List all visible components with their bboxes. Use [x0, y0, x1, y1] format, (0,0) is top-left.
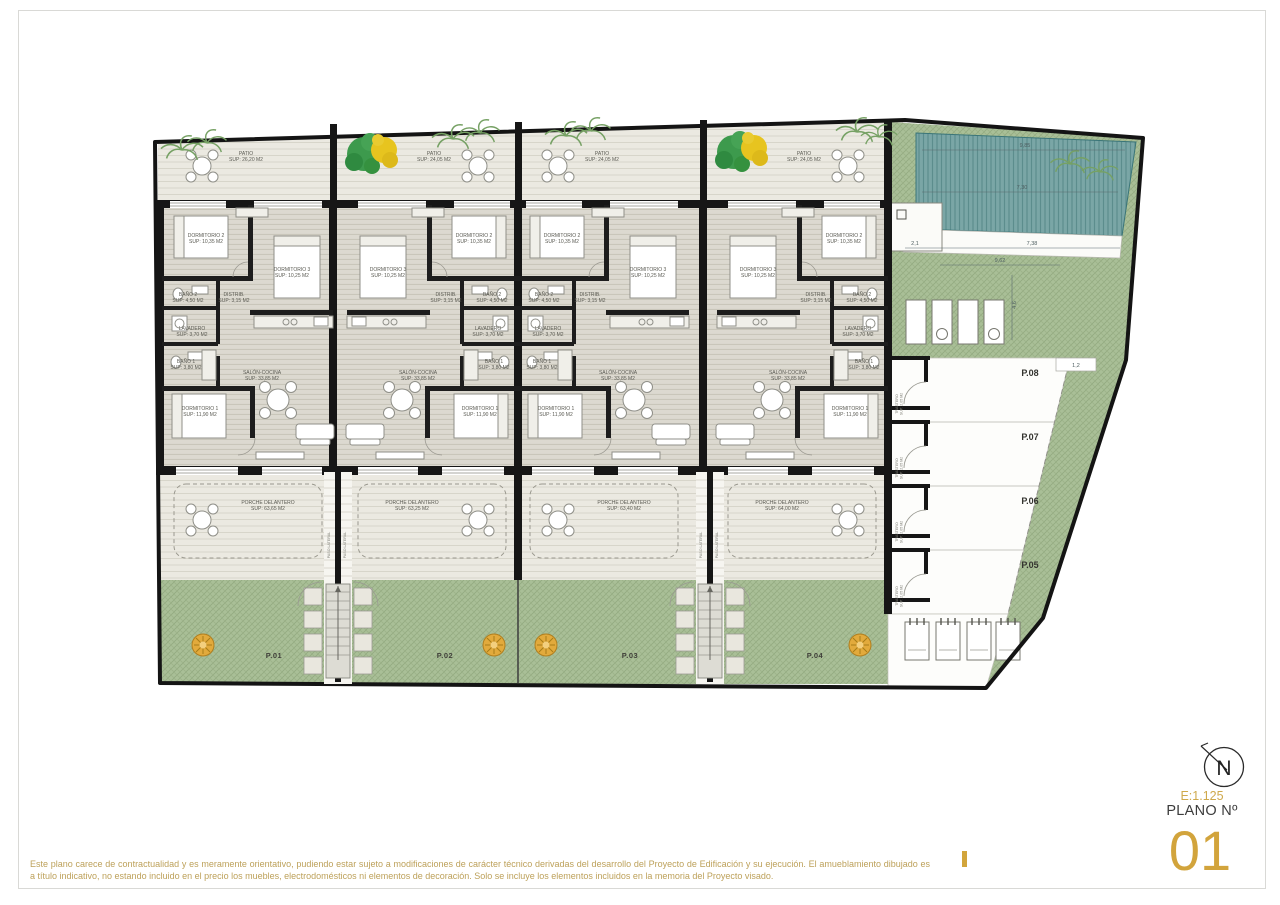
dim-deck-left: 2,1 — [911, 241, 919, 247]
porch-strip — [158, 470, 888, 581]
room-label-dorm3-unit3: DORMITORIO 3SUP: 10,25 M2 — [630, 267, 667, 279]
room-label-dorm3-unit1: DORMITORIO 3SUP: 10,25 M2 — [274, 267, 311, 279]
parking-space-label-P.07: P.07 — [1021, 432, 1038, 442]
room-label-lavadero-unit3: LAVADEROSUP: 3,70 M2 — [532, 326, 563, 338]
room-label-dorm3-unit2: DORMITORIO 3SUP: 10,25 M2 — [370, 267, 407, 279]
dim-deck-right: 7,38 — [1027, 241, 1038, 247]
passage-label-4: PASO LATERAL — [715, 532, 719, 558]
front-gardens — [158, 580, 888, 684]
dim-parking-entry: 1,2 — [1072, 363, 1080, 369]
room-label-lavadero-unit4: LAVADEROSUP: 3,70 M2 — [842, 326, 873, 338]
dim-green-height: 4,6 — [1012, 301, 1018, 309]
north-compass: N — [1196, 735, 1252, 793]
parking-space-label-P.05: P.05 — [1021, 560, 1038, 570]
room-label-dorm1-unit2: DORMITORIO 1SUP: 11,90 M2 — [462, 406, 499, 418]
trastero-label-4: TRASTEROSUP: 2,05 M2 — [895, 585, 904, 607]
plano-number: 01 — [1144, 820, 1256, 882]
room-label-dorm2-unit2: DORMITORIO 2SUP: 10,35 M2 — [456, 233, 493, 245]
room-label-dorm2-unit3: DORMITORIO 2SUP: 10,35 M2 — [544, 233, 581, 245]
site-plan-drawing: PATIOSUP: 26,20 M2DORMITORIO 2SUP: 10,35… — [0, 0, 1280, 740]
room-label-salon-unit3: SALÓN-COCINASUP: 33,85 M2 — [599, 369, 638, 382]
bins-area — [888, 614, 1020, 688]
dim-pool-top: 9,85 — [1020, 143, 1031, 149]
room-label-salon-unit2: SALÓN-COCINASUP: 33,85 M2 — [399, 369, 438, 382]
plano-label: PLANO Nº — [1150, 803, 1254, 819]
room-label-dorm1-unit3: DORMITORIO 1SUP: 11,90 M2 — [538, 406, 575, 418]
plan-scale: E:1.125 — [1150, 789, 1254, 803]
plot-label-P.02: P.02 — [437, 651, 453, 660]
room-label-salon-unit1: SALÓN-COCINASUP: 33,85 M2 — [243, 369, 282, 382]
passage-label-3: PASO LATERAL — [699, 532, 703, 558]
passage-label-1: PASO LATERAL — [327, 532, 331, 558]
stair-2 — [698, 584, 722, 678]
stair-1 — [326, 584, 350, 678]
dim-green-width: 9,62 — [995, 258, 1006, 264]
room-label-dorm2-unit4: DORMITORIO 2SUP: 10,35 M2 — [826, 233, 863, 245]
passage-label-2: PASO LATERAL — [343, 532, 347, 558]
parking-space-label-P.06: P.06 — [1021, 496, 1038, 506]
room-label-dorm3-unit4: DORMITORIO 3SUP: 10,25 M2 — [740, 267, 777, 279]
room-label-dorm1-unit1: DORMITORIO 1SUP: 11,90 M2 — [182, 406, 219, 418]
disclaimer-text: Este plano carece de contractualidad y e… — [30, 859, 930, 882]
building-block — [158, 205, 888, 472]
north-letter: N — [1216, 757, 1231, 780]
trastero-label-3: TRASTEROSUP: 2,05 M2 — [895, 521, 904, 543]
room-label-dorm1-unit4: DORMITORIO 1SUP: 11,90 M2 — [832, 406, 869, 418]
gold-separator-tick — [962, 851, 967, 867]
parking-space-label-P.08: P.08 — [1021, 368, 1038, 378]
room-label-lavadero-unit2: LAVADEROSUP: 3,70 M2 — [472, 326, 503, 338]
trastero-label-1: TRASTEROSUP: 2,05 M2 — [895, 393, 904, 415]
patio-strip — [158, 121, 903, 209]
dim-pool-mid: 7,30 — [1017, 185, 1028, 191]
room-label-salon-unit4: SALÓN-COCINASUP: 33,85 M2 — [769, 369, 808, 382]
plot-label-P.03: P.03 — [622, 651, 638, 660]
plot-label-P.01: P.01 — [266, 651, 282, 660]
trastero-label-2: TRASTEROSUP: 2,05 M2 — [895, 457, 904, 479]
room-label-lavadero-unit1: LAVADEROSUP: 3,70 M2 — [176, 326, 207, 338]
room-label-dorm2-unit1: DORMITORIO 2SUP: 10,35 M2 — [188, 233, 225, 245]
plot-label-P.04: P.04 — [807, 651, 824, 660]
